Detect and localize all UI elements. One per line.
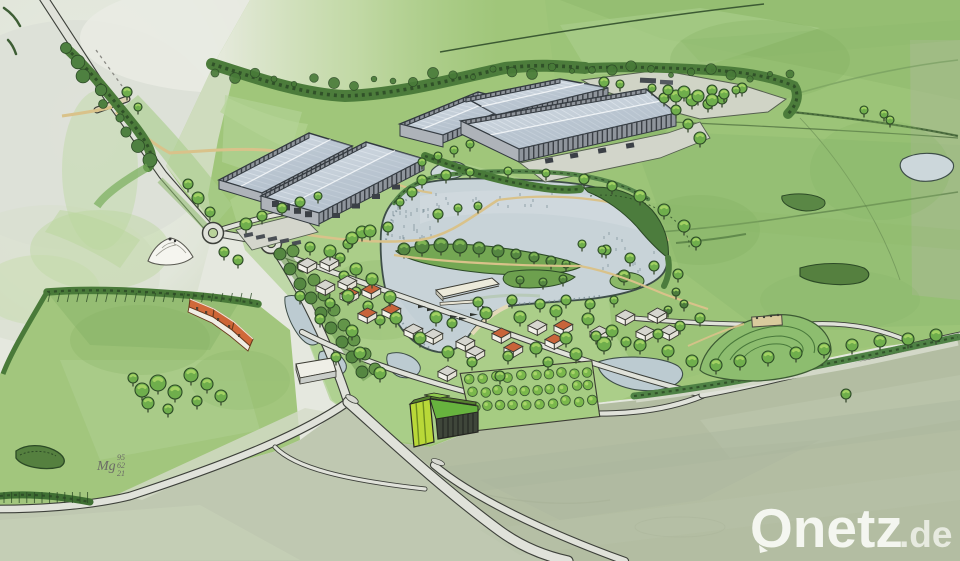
svg-text:21: 21 <box>117 469 125 478</box>
svg-text:Mg: Mg <box>96 459 116 474</box>
svg-text:.de: .de <box>899 514 952 555</box>
svg-text:Onetz: Onetz <box>750 497 903 559</box>
